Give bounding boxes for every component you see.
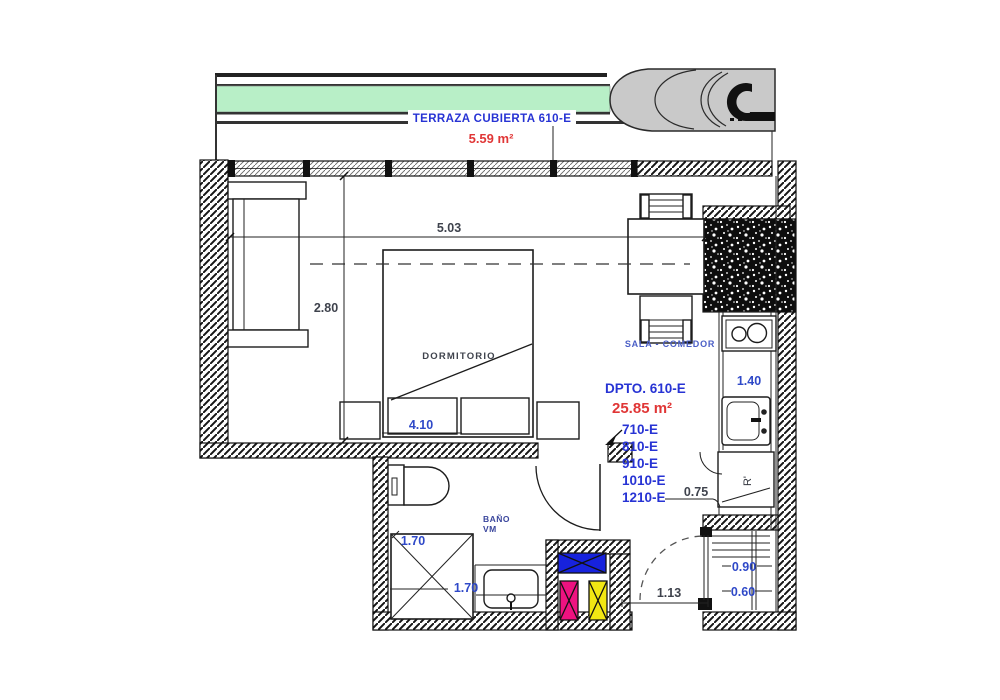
terrace-line-2 bbox=[215, 84, 610, 86]
door-post-top bbox=[700, 527, 712, 537]
bed bbox=[383, 250, 533, 437]
bedroom-bottom-wall bbox=[200, 443, 538, 458]
dim-140: 1.40 bbox=[737, 374, 761, 388]
dining-set bbox=[628, 194, 704, 343]
door-post-bottom bbox=[698, 598, 712, 610]
bathroom-left-wall bbox=[373, 457, 388, 630]
column-top-strip bbox=[703, 206, 790, 219]
living-dining-label: SALA - COMEDOR bbox=[625, 339, 715, 349]
dim-075: 0.75 bbox=[684, 485, 708, 499]
terrace-left-edge bbox=[215, 75, 217, 161]
dining-table bbox=[628, 219, 704, 294]
toilet bbox=[388, 465, 449, 505]
unit-item: 1210-E bbox=[622, 490, 666, 505]
terrace-label: TERRAZA CUBIERTA 610-E bbox=[413, 113, 572, 125]
dim-170a: 1.70 bbox=[401, 534, 425, 548]
unit-item: 910-E bbox=[622, 456, 658, 471]
kitchen-mid-wall bbox=[703, 515, 778, 530]
dim-060: 0.60 bbox=[731, 585, 755, 599]
unit-item: 1010-E bbox=[622, 473, 666, 488]
vanity-sink bbox=[475, 565, 548, 612]
nightstand-right bbox=[537, 402, 579, 439]
bathroom-door bbox=[536, 464, 600, 531]
terrace-area: 5.59 m² bbox=[469, 131, 514, 146]
bedroom-label: DORMITORIO bbox=[422, 351, 496, 362]
closet-top-cap bbox=[228, 182, 306, 199]
dim-090: 0.90 bbox=[732, 560, 756, 574]
cooktop bbox=[722, 316, 776, 351]
terrace-outer-line bbox=[215, 73, 607, 77]
bottom-right-wall bbox=[703, 612, 796, 630]
other-units-list: 710-E 810-E 910-E 1010-E 1210-E bbox=[622, 422, 666, 505]
structural-column bbox=[703, 219, 795, 312]
dim-503: 5.03 bbox=[437, 221, 461, 235]
bath-door-swing bbox=[536, 466, 600, 530]
curved-canopy-detail bbox=[610, 69, 775, 131]
dim-280: 2.80 bbox=[314, 301, 338, 315]
closet bbox=[228, 182, 308, 347]
fridge-label: R' bbox=[742, 476, 754, 486]
floor-plan-page: R' bbox=[0, 0, 1000, 700]
kitchen-sink bbox=[722, 397, 770, 445]
dim-170b: 1.70 bbox=[454, 581, 478, 595]
shaft-right-wall bbox=[610, 554, 630, 630]
shaft-left-wall bbox=[546, 540, 558, 630]
floor-plan-drawing: R' bbox=[0, 0, 1000, 700]
unit-item: 810-E bbox=[622, 439, 658, 454]
bed-pillow-right bbox=[461, 398, 529, 434]
bathroom-label-line1: BAÑO bbox=[483, 514, 510, 524]
service-shaft bbox=[558, 553, 607, 620]
dim-113: 1.13 bbox=[657, 586, 681, 600]
terrace-green-band bbox=[216, 86, 610, 112]
dining-chair-top bbox=[640, 194, 692, 219]
apartment-label: DPTO. 610-E bbox=[605, 381, 686, 396]
apartment-area: 25.85 m² bbox=[612, 400, 672, 417]
nightstand-left bbox=[340, 402, 380, 439]
canopy-bar bbox=[750, 112, 775, 121]
dim-410: 4.10 bbox=[409, 418, 433, 432]
dining-chair-bottom bbox=[640, 296, 692, 343]
closet-body bbox=[233, 199, 299, 330]
top-wall-right bbox=[637, 161, 772, 176]
canopy-outer-shape bbox=[610, 69, 775, 131]
unit-item: 710-E bbox=[622, 422, 658, 437]
bathroom-label-line2: VM bbox=[483, 524, 497, 534]
closet-bottom-cap bbox=[228, 330, 308, 347]
left-wall bbox=[200, 160, 228, 458]
